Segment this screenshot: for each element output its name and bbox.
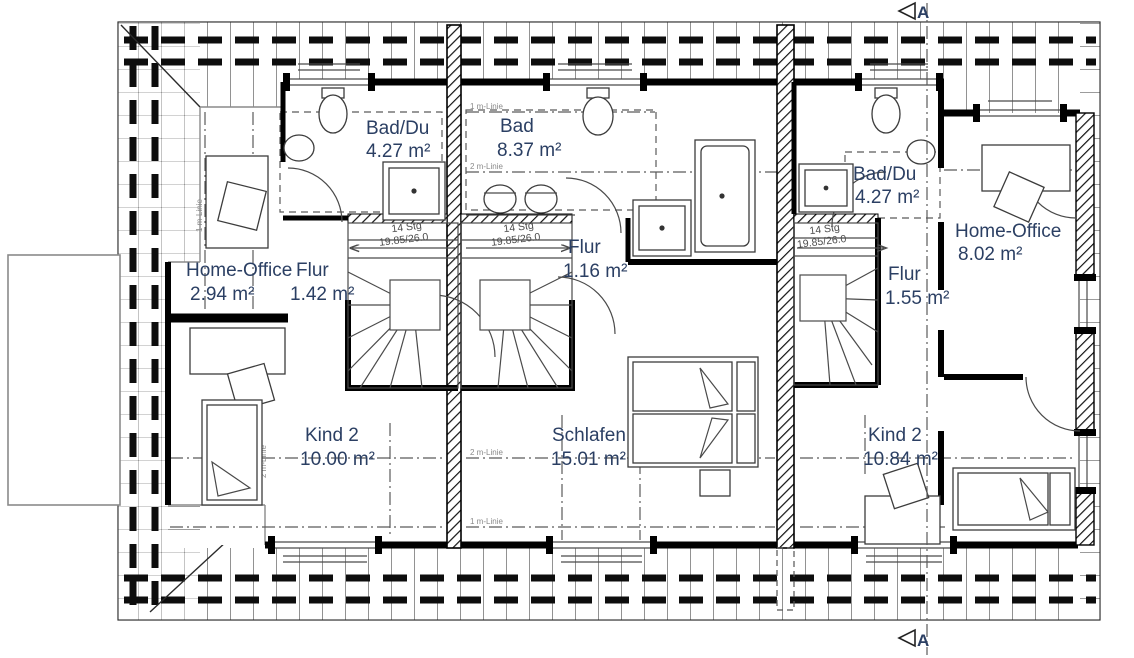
shower [799, 164, 853, 212]
svg-text:Bad: Bad [500, 116, 534, 137]
svg-text:Kind 2: Kind 2 [305, 425, 359, 446]
svg-text:1.55 m²: 1.55 m² [885, 288, 949, 309]
svg-text:4.27 m²: 4.27 m² [855, 187, 919, 208]
svg-text:10.00 m²: 10.00 m² [300, 449, 375, 470]
svg-text:4.27 m²: 4.27 m² [366, 141, 430, 162]
shower [633, 200, 691, 256]
svg-text:8.37 m²: 8.37 m² [497, 140, 561, 161]
height-line-label: 2 m-Linie [470, 448, 503, 457]
bed [202, 400, 262, 505]
svg-text:15.01 m²: 15.01 m² [551, 449, 626, 470]
svg-text:Flur: Flur [568, 237, 601, 258]
svg-text:1.42 m²: 1.42 m² [290, 284, 354, 305]
toilet [583, 88, 613, 135]
svg-text:1.16 m²: 1.16 m² [563, 261, 627, 282]
height-line-label: 1 m-Linie [470, 102, 503, 111]
floor-plan-canvas: 1 m-Linie 2 m-Linie 2 m-Linie 1 m-Linie … [0, 0, 1134, 658]
svg-text:A: A [917, 631, 929, 650]
svg-text:Flur: Flur [888, 264, 921, 285]
height-line-label: 2 m-Linie [470, 162, 503, 171]
section-marker-bottom: A [899, 630, 929, 650]
toilet [872, 88, 900, 133]
floor-plan-page: 1 m-Linie 2 m-Linie 2 m-Linie 1 m-Linie … [0, 0, 1134, 658]
svg-text:Home-Office: Home-Office [186, 260, 292, 281]
toilet [319, 88, 347, 133]
sink [284, 135, 314, 161]
svg-text:Schlafen: Schlafen [552, 425, 626, 446]
svg-text:A: A [917, 3, 929, 22]
bathtub [695, 140, 755, 252]
svg-text:8.02 m²: 8.02 m² [958, 244, 1022, 265]
section-marker-top: A [899, 3, 929, 22]
svg-text:Kind 2: Kind 2 [868, 425, 922, 446]
left-annex-outline [8, 255, 120, 505]
desk-chair [206, 156, 268, 248]
height-line-label: 1 m-Linie [195, 199, 204, 232]
svg-text:Flur: Flur [296, 260, 329, 281]
svg-text:Bad/Du: Bad/Du [366, 118, 429, 139]
svg-text:Bad/Du: Bad/Du [853, 164, 916, 185]
height-line-label: 1 m-Linie [470, 517, 503, 526]
bed [953, 468, 1075, 530]
svg-text:2.94 m²: 2.94 m² [190, 284, 254, 305]
svg-text:Home-Office: Home-Office [955, 221, 1061, 242]
sink [907, 140, 935, 164]
shower [383, 162, 445, 220]
